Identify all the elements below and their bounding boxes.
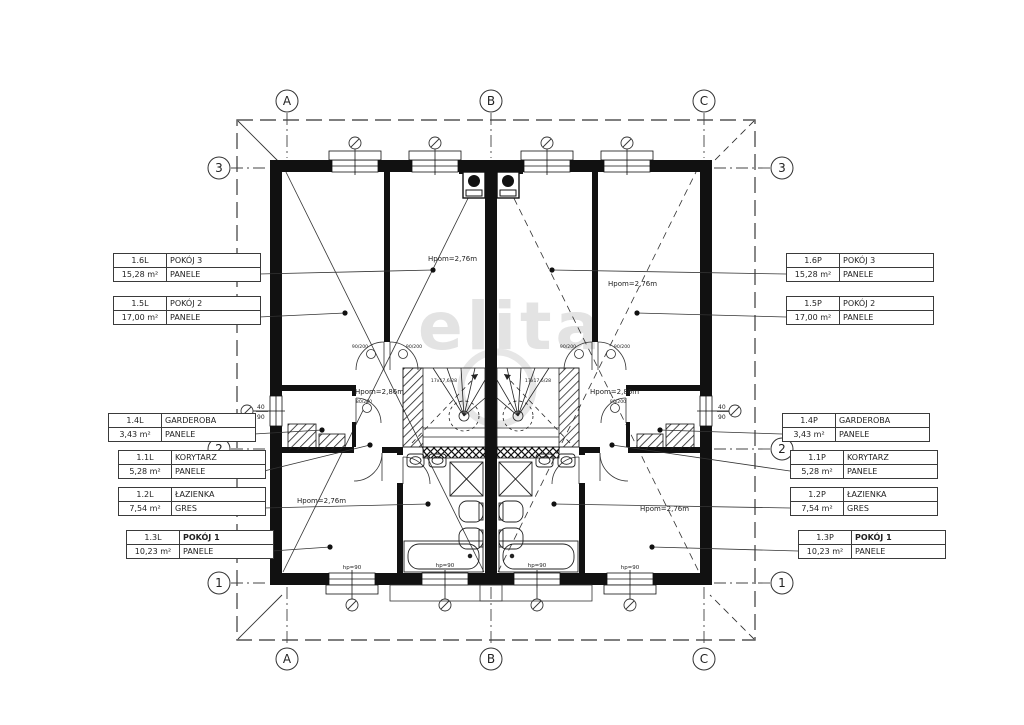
room-area: 10,23 m² [127,545,180,558]
room-area: 7,54 m² [119,502,172,515]
sink-icon [407,454,424,467]
height-label: Hpom=2,76m [297,497,346,505]
room-label-1-6L: 1.6LPOKÓJ 3 15,28 m²PANELE [113,253,261,282]
room-finish: GRES [844,502,937,515]
sill-height-label: hp=90 [436,563,455,569]
room-finish: PANELE [844,465,937,478]
axis-marker-B-top: B [480,90,502,112]
svg-text:2: 2 [778,442,786,456]
axis-marker-A-top: A [276,90,298,112]
shower-icon [499,462,532,496]
room-label-1-4L: 1.4LGARDEROBA 3,43 m²PANELE [108,413,256,442]
room-label-1-1P: 1.1PKORYTARZ 5,28 m²PANELE [790,450,938,479]
room-finish: PANELE [172,465,265,478]
room-id: 1.3P [799,531,852,544]
room-label-1-5P: 1.5PPOKÓJ 2 17,00 m²PANELE [786,296,934,325]
height-label: Hpom=2,86m [590,388,639,396]
room-label-1-4P: 1.4PGARDEROBA 3,43 m²PANELE [782,413,930,442]
door-dim-label: 90/200 [560,344,576,350]
room-label-1-3P: 1.3PPOKÓJ 1 10,23 m²PANELE [798,530,946,559]
toilet-icon [459,501,483,522]
door-dim-label: 90/200 [406,344,422,350]
room-id: 1.5L [114,297,167,310]
room-label-1-5L: 1.5LPOKÓJ 2 17,00 m²PANELE [113,296,261,325]
window-marker-icon [712,405,741,417]
axis-marker-B-bottom: B [480,648,502,670]
door-dim-label: 90/200 [614,344,630,350]
bathroom-fixtures-left [404,454,483,572]
sill-height-label: hp=90 [343,565,362,571]
room-name: GARDEROBA [836,414,929,427]
room-label-1-2P: 1.2PŁAZIENKA 7,54 m²GRES [790,487,938,516]
room-id: 1.2L [119,488,172,501]
axis-marker-3-right: 3 [771,157,793,179]
svg-text:A: A [283,94,292,108]
axis-marker-1-left: 1 [208,572,230,594]
floor-plan-drawing: A B C A B C 3 2 1 3 2 1 [0,0,1024,725]
room-name: POKÓJ 3 [167,254,260,267]
room-name: KORYTARZ [172,451,265,464]
window-dim-label: 90 [718,414,726,421]
stair-dim-label: 17x17,6/28 [525,378,551,384]
door-dim-label: 80/200 [356,399,372,405]
door-dim-label: 80/200 [610,399,626,405]
window-dim-label: 40 [257,404,265,411]
svg-text:3: 3 [215,161,223,175]
svg-text:1: 1 [215,576,223,590]
svg-text:C: C [700,94,708,108]
room-id: 1.2P [791,488,844,501]
window-marker-icon [439,585,451,611]
height-label: Hpom=2,76m [608,280,657,288]
room-label-1-1L: 1.1LKORYTARZ 5,28 m²PANELE [118,450,266,479]
svg-text:A: A [283,652,292,666]
sill-height-label: hp=90 [528,563,547,569]
room-name: POKÓJ 1 [180,531,273,544]
room-label-1-2L: 1.2LŁAZIENKA 7,54 m²GRES [118,487,266,516]
room-finish: PANELE [840,268,933,281]
room-area: 5,28 m² [119,465,172,478]
axis-marker-C-bottom: C [693,648,715,670]
room-area: 3,43 m² [783,428,836,441]
room-area: 17,00 m² [114,311,167,324]
room-id: 1.4P [783,414,836,427]
room-name: ŁAZIENKA [172,488,265,501]
room-name: POKÓJ 3 [840,254,933,267]
window-dim-label: 40 [718,404,726,411]
sill-height-label: hp=90 [621,565,640,571]
room-name: POKÓJ 2 [167,297,260,310]
room-area: 15,28 m² [114,268,167,281]
room-area: 5,28 m² [791,465,844,478]
room-id: 1.4L [109,414,162,427]
room-area: 15,28 m² [787,268,840,281]
door-dim-label: 90/200 [352,344,368,350]
room-area: 10,23 m² [799,545,852,558]
room-id: 1.3L [127,531,180,544]
room-name: GARDEROBA [162,414,255,427]
axis-marker-C-top: C [693,90,715,112]
room-name: POKÓJ 2 [840,297,933,310]
height-label: Hpom=2,76m [640,505,689,513]
svg-text:B: B [487,94,495,108]
floor-plan-page: elita [0,0,1024,725]
walls [270,160,712,585]
room-name: POKÓJ 1 [852,531,945,544]
room-finish: PANELE [167,311,260,324]
svg-text:B: B [487,652,495,666]
room-id: 1.1P [791,451,844,464]
svg-text:3: 3 [778,161,786,175]
room-area: 17,00 m² [787,311,840,324]
bathroom-fixtures-right [499,454,578,572]
axis-marker-A-bottom: A [276,648,298,670]
svg-text:1: 1 [778,576,786,590]
room-finish: PANELE [162,428,255,441]
window-marker-icon [531,585,543,611]
room-label-1-3L: 1.3LPOKÓJ 1 10,23 m²PANELE [126,530,274,559]
room-finish: PANELE [836,428,929,441]
window-dim-label: 90 [257,414,265,421]
room-id: 1.1L [119,451,172,464]
room-finish: PANELE [852,545,945,558]
height-label: Hpom=2,76m [428,255,477,263]
room-id: 1.5P [787,297,840,310]
room-area: 3,43 m² [109,428,162,441]
svg-text:C: C [700,652,708,666]
room-label-1-6P: 1.6PPOKÓJ 3 15,28 m²PANELE [786,253,934,282]
shower-icon [450,462,483,496]
height-label: Hpom=2,86m [355,388,404,396]
stair-dim-label: 17x17,6/28 [431,378,457,384]
room-finish: PANELE [180,545,273,558]
axis-marker-3-left: 3 [208,157,230,179]
toilet-icon [499,501,523,522]
room-area: 7,54 m² [791,502,844,515]
room-id: 1.6L [114,254,167,267]
room-finish: PANELE [167,268,260,281]
room-finish: GRES [172,502,265,515]
room-name: ŁAZIENKA [844,488,937,501]
sink-icon [558,454,575,467]
room-name: KORYTARZ [844,451,937,464]
axis-marker-1-right: 1 [771,572,793,594]
room-id: 1.6P [787,254,840,267]
room-finish: PANELE [840,311,933,324]
